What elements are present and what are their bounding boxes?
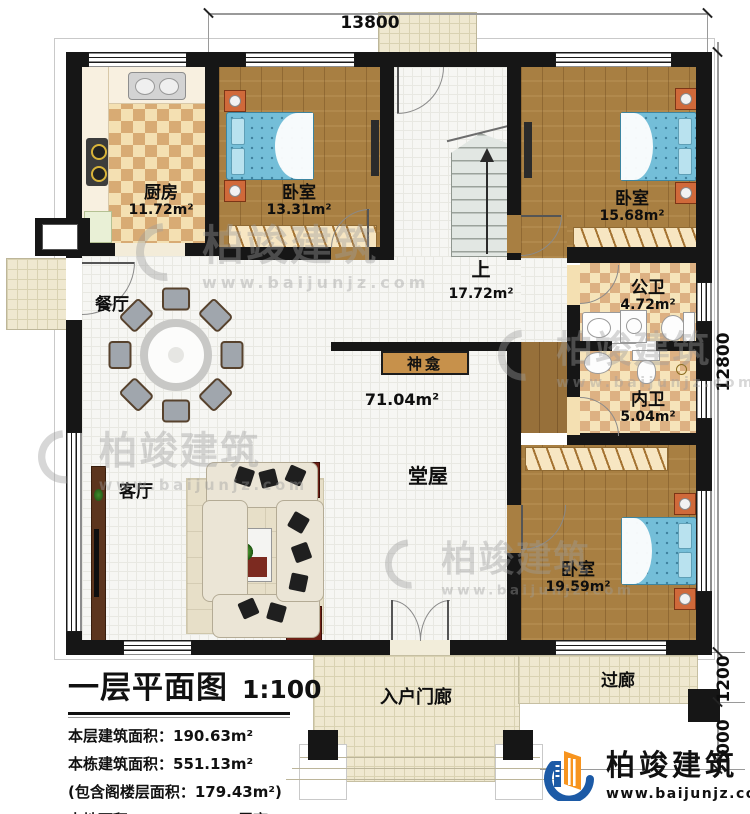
tv-icon — [94, 529, 99, 597]
brand-name: 柏竣建筑 — [606, 742, 750, 784]
sofa-pillow — [288, 572, 308, 592]
room-label-bedroom-se: 卧室 19.59m² — [545, 561, 610, 595]
dining-chair — [162, 400, 190, 423]
dimension-right-corridor: 1200 — [714, 651, 734, 707]
niche-inner — [42, 224, 78, 250]
shrine-label: 神龛 — [407, 353, 443, 374]
shrine-shelf: 神龛 — [381, 351, 469, 375]
wall — [331, 342, 521, 351]
window — [696, 282, 712, 322]
nightstand — [675, 182, 697, 204]
floor-plan-canvas: 神龛 — [0, 0, 750, 814]
pillow — [678, 118, 692, 145]
room-label-stairs: 上 17.72m² — [448, 260, 513, 302]
dining-chair — [162, 288, 190, 311]
wall — [380, 52, 394, 260]
bath-passage-floor — [521, 342, 567, 433]
dimension-line — [208, 13, 708, 15]
stat-footprint-height: 占地面积：206.30m² 层高：3.9m — [68, 809, 325, 814]
double-door-opening — [390, 640, 450, 655]
kitchen-tile — [108, 96, 207, 245]
kitchen-area: 11.72m² — [128, 203, 193, 218]
bed — [226, 112, 314, 180]
room-label-kitchen: 厨房 11.72m² — [128, 184, 193, 218]
lamp-icon — [679, 498, 691, 510]
sofa-left — [202, 500, 248, 602]
floor-drain-icon — [676, 364, 687, 375]
wall — [567, 341, 612, 351]
wall — [567, 247, 696, 263]
sink-icon — [584, 352, 612, 374]
dimension-right: 12800 — [714, 332, 734, 392]
corridor-name: 过廊 — [601, 672, 635, 691]
room-label-hall: 堂屋 — [408, 465, 448, 487]
toilet-icon — [661, 315, 685, 341]
wall — [219, 247, 331, 260]
burner — [91, 144, 107, 160]
brand-block: 柏竣建筑 www.baijunjz.com — [540, 742, 750, 802]
lamp-icon — [679, 593, 691, 605]
toilet-icon — [637, 360, 656, 384]
wall — [507, 52, 521, 215]
door-leaf — [521, 215, 561, 217]
dining-chair — [109, 341, 132, 369]
bed — [621, 517, 697, 585]
stove — [86, 138, 108, 186]
inner-bath-name: 内卫 — [620, 391, 675, 410]
door-leaf — [397, 67, 399, 113]
living-name: 客厅 — [119, 483, 153, 502]
washing-machine-icon — [620, 310, 647, 343]
window — [696, 490, 712, 592]
bedroom-nw-name: 卧室 — [266, 184, 331, 203]
wall — [507, 253, 521, 260]
title-rule-thin — [68, 717, 290, 718]
window — [555, 640, 667, 655]
pillow — [678, 148, 692, 175]
brand-website: www.baijunjz.com — [606, 786, 750, 802]
lamp-icon — [229, 95, 241, 107]
bed — [620, 112, 697, 181]
extension-line — [208, 13, 209, 52]
window — [123, 640, 192, 655]
bedroom-ne-name: 卧室 — [599, 190, 664, 209]
window — [555, 52, 672, 67]
public-bath-name: 公卫 — [620, 279, 675, 298]
title-rule — [68, 712, 290, 715]
stat-building-area: 本栋建筑面积：551.13m² — [68, 753, 325, 774]
plant-icon — [94, 489, 103, 501]
kitchen-name: 厨房 — [128, 184, 193, 203]
stairs-area: 17.72m² — [448, 287, 513, 302]
inner-bath-area: 5.04m² — [620, 410, 675, 425]
pillow — [231, 118, 245, 145]
room-label-entry-porch: 入户门廊 — [380, 688, 452, 708]
pillow — [678, 523, 692, 549]
wall — [567, 305, 580, 398]
blanket — [275, 113, 313, 179]
side-patio — [6, 258, 68, 330]
chimney-niche — [35, 218, 90, 256]
room-label-bedroom-nw: 卧室 13.31m² — [266, 184, 331, 218]
door-opening — [331, 247, 369, 260]
wall — [185, 243, 219, 256]
door-opening — [507, 505, 521, 553]
public-bath-area: 4.72m² — [620, 298, 675, 313]
burner — [91, 166, 107, 182]
stairs-name: 上 — [448, 260, 513, 281]
wall — [369, 247, 394, 260]
room-label-public-bath: 公卫 4.72m² — [620, 279, 675, 313]
door-leaf — [367, 209, 369, 247]
nightstand — [675, 88, 697, 110]
door-leaf — [391, 600, 393, 640]
room-label-hall-area: 71.04m² — [365, 391, 439, 409]
lamp-icon — [680, 93, 692, 105]
door-leaf — [82, 262, 134, 264]
hall-area: 71.04m² — [365, 391, 439, 409]
dining-name: 餐厅 — [95, 296, 129, 315]
window — [696, 380, 712, 419]
wall — [205, 52, 219, 255]
tv-icon — [371, 120, 379, 176]
room-label-corridor: 过廊 — [601, 672, 635, 691]
table-center — [168, 347, 184, 363]
door-opening — [567, 397, 580, 435]
sink-icon — [587, 318, 611, 338]
lamp-icon — [680, 187, 692, 199]
room-label-bedroom-ne: 卧室 15.68m² — [599, 190, 664, 224]
kitchen-sink — [128, 72, 186, 100]
sink-basin — [159, 78, 179, 95]
door-opening — [115, 243, 185, 256]
bedroom-ne-area: 15.68m² — [599, 209, 664, 224]
stair-arrow-head — [480, 148, 494, 162]
door-leaf — [521, 505, 523, 549]
stat-attic-area: (包含阁楼层面积：179.43m²) — [68, 781, 325, 802]
nightstand — [674, 588, 696, 610]
dining-table — [140, 319, 212, 391]
window — [245, 52, 355, 67]
bedroom-se-name: 卧室 — [545, 561, 610, 580]
room-label-dining: 餐厅 — [95, 296, 129, 315]
plan-title: 一层平面图 — [68, 662, 228, 707]
wardrobe — [525, 447, 668, 471]
wall — [656, 341, 696, 351]
wall — [507, 553, 521, 640]
pillow — [678, 552, 692, 578]
room-label-living: 客厅 — [119, 483, 153, 502]
brand-logo-icon — [540, 743, 598, 801]
blanket — [622, 518, 652, 584]
bedroom-se-area: 19.59m² — [545, 580, 610, 595]
porch-pillar — [503, 730, 533, 760]
stat-floor-area: 本层建筑面积：190.63m² — [68, 725, 325, 746]
window — [88, 52, 187, 67]
hall-name: 堂屋 — [408, 465, 448, 487]
nightstand — [674, 493, 696, 515]
plan-scale: 1:100 — [242, 675, 322, 704]
window — [66, 432, 82, 632]
dimension-top: 13800 — [330, 13, 410, 33]
pillow — [231, 148, 245, 175]
wall — [507, 342, 521, 505]
door-opening — [66, 258, 82, 320]
entry-porch-name: 入户门廊 — [380, 688, 452, 708]
lamp-icon — [229, 185, 241, 197]
washer-door — [626, 318, 642, 334]
door-opening — [507, 215, 521, 253]
nightstand — [224, 90, 246, 112]
door-leaf — [447, 600, 449, 640]
sink-basin — [135, 78, 155, 95]
room-label-inner-bath: 内卫 5.04m² — [620, 391, 675, 425]
title-block: 一层平面图 1:100 本层建筑面积：190.63m² 本栋建筑面积：551.1… — [68, 662, 325, 814]
extension-line — [707, 13, 708, 52]
blanket — [621, 113, 653, 180]
nightstand — [224, 180, 246, 202]
porch-step-line — [292, 768, 548, 769]
door-opening — [567, 265, 580, 305]
bedroom-nw-area: 13.31m² — [266, 203, 331, 218]
toilet-tank — [683, 312, 695, 343]
stair-arrow-line — [486, 160, 488, 254]
dining-chair — [221, 341, 244, 369]
porch-step-line — [286, 779, 554, 780]
tv-icon — [524, 122, 532, 178]
tv-cabinet — [91, 466, 106, 644]
